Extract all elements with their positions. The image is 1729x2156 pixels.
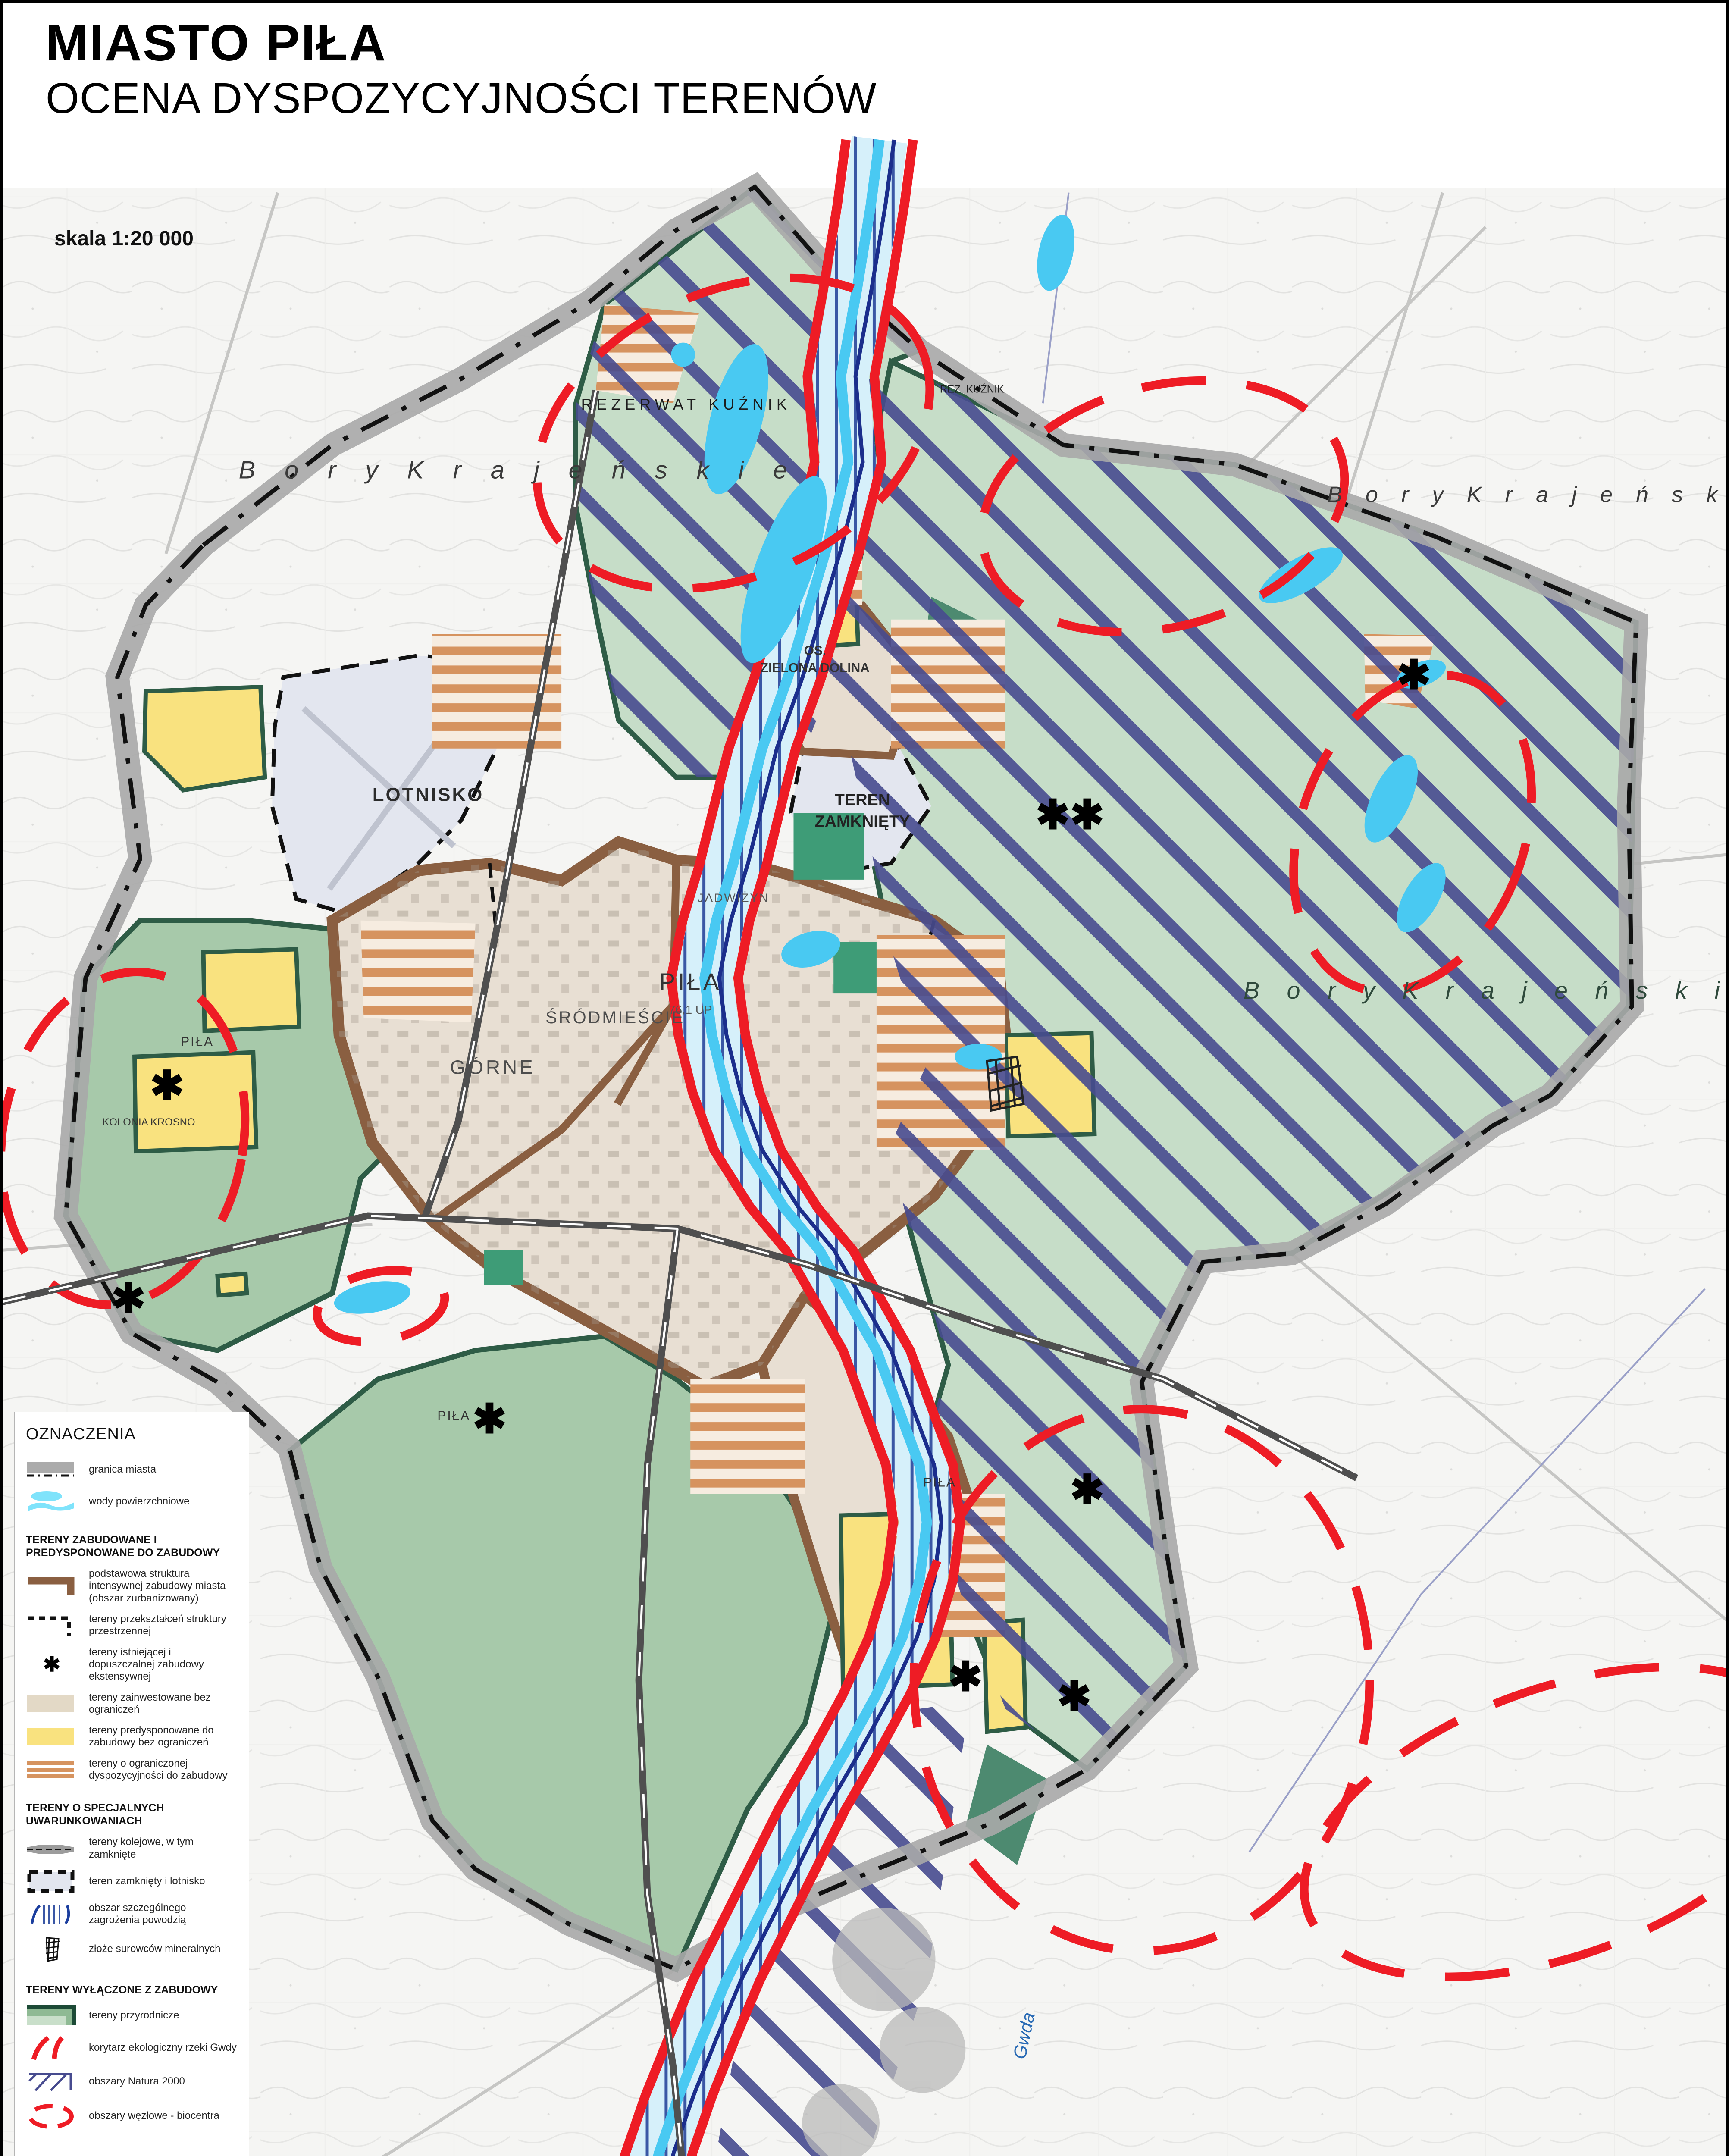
asterisk-icon: ✱	[1397, 652, 1431, 698]
legend-item-label: obszary Natura 2000	[89, 2075, 185, 2087]
closed-area-swatch-icon	[26, 1869, 78, 1893]
asterisk-icon: ✱	[1036, 792, 1070, 838]
legend-item-label: złoże surowców mineralnych	[89, 1943, 220, 1955]
label-srodmiescie: ŚRÓDMIEŚCIE	[545, 1007, 685, 1027]
asterisk-swatch-icon: ✱	[26, 1652, 78, 1677]
asterisk-icon: ✱	[1070, 792, 1104, 838]
legend-item-przyrodnicze: tereny przyrodnicze	[26, 2005, 238, 2027]
legend-item-label: tereny zainwestowane bez ograniczeń	[89, 1692, 238, 1716]
legend-item-label: tereny o ograniczonej dyspozycyjności do…	[89, 1758, 238, 1782]
legend-item-zainwestowane: tereny zainwestowane bez ograniczeń	[26, 1692, 238, 1716]
asterisk-icon: ✱	[150, 1063, 184, 1109]
flood-risk-swatch-icon	[26, 1902, 78, 1926]
nature-swatch-icon	[26, 2005, 78, 2027]
legend-title: OZNACZENIA	[26, 1425, 238, 1444]
label-pila-small-2: PIŁA	[437, 1409, 470, 1423]
natura2000-swatch-icon	[26, 2070, 78, 2094]
asterisk-icon: ✱	[473, 1396, 507, 1442]
legend-item-ekstensywna: ✱ tereny istniejącej i dopuszczalnej zab…	[26, 1646, 238, 1683]
legend-item-label: tereny przekształceń struktury przestrze…	[89, 1613, 238, 1638]
legend-item-label: podstawowa struktura intensywnej zabudow…	[89, 1568, 238, 1604]
legend-item-label: granica miasta	[89, 1463, 156, 1476]
svg-text:✱: ✱	[43, 1653, 60, 1676]
legend-item-struktura: podstawowa struktura intensywnej zabudow…	[26, 1568, 238, 1604]
label-pila-small-1: PIŁA	[181, 1035, 214, 1049]
legend-item-label: tereny istniejącej i dopuszczalnej zabud…	[89, 1646, 238, 1683]
asterisk-icon: ✱	[1070, 1467, 1104, 1513]
label-jadwizyn: JADWIŻYN	[698, 891, 770, 905]
legend-item-natura2000: obszary Natura 2000	[26, 2070, 238, 2094]
legend-item-zloze: złoże surowców mineralnych	[26, 1935, 238, 1964]
label-bory-nw: B o r y K r a j e ń s k i e	[239, 457, 799, 484]
legend-item-ograniczona: tereny o ograniczonej dyspozycyjności do…	[26, 1758, 238, 1782]
city-border-swatch-icon	[26, 1458, 78, 1481]
legend-item-korytarz: korytarz ekologiczny rzeki Gwdy	[26, 2035, 238, 2061]
legend-item-kolejowe: tereny kolejowe, w tym zamknięte	[26, 1836, 238, 1861]
legend-item-zamkniety: teren zamknięty i lotnisko	[26, 1869, 238, 1893]
legend-item-label: tereny kolejowe, w tym zamknięte	[89, 1836, 238, 1861]
label-pila-small-3: PIŁA	[923, 1476, 956, 1490]
label-teren-zamkniety-1: TEREN	[835, 791, 890, 809]
plan-sheet: ✱ ✱ ✱ ✱ ✱ ✱ ✱ ✱ ✱ B o r y K r a j e ń s …	[0, 0, 1729, 2156]
mineral-deposit-swatch-icon	[26, 1935, 78, 1964]
city-map: ✱ ✱ ✱ ✱ ✱ ✱ ✱ ✱ ✱ B o r y K r a j e ń s …	[3, 3, 1726, 2156]
legend-box: OZNACZENIA granica miasta wody powierzch…	[14, 1412, 249, 2156]
legend-section-header: TERENY ZABUDOWANE I PREDYSPONOWANE DO ZA…	[26, 1533, 238, 1559]
legend-item-granica: granica miasta	[26, 1458, 238, 1481]
label-pila-elevation: 76,1 UP	[669, 1003, 712, 1016]
legend-item-wody: wody powierzchniowe	[26, 1489, 238, 1514]
legend-item-label: teren zamknięty i lotnisko	[89, 1875, 205, 1887]
asterisk-icon: ✱	[949, 1654, 983, 1700]
limited-swatch-icon	[26, 1760, 78, 1780]
legend-item-label: obszar szczególnego zagrożenia powodzią	[89, 1902, 238, 1927]
asterisk-icon: ✱	[1057, 1673, 1091, 1719]
asterisk-icon: ✱	[111, 1276, 145, 1322]
railway-swatch-icon	[26, 1839, 78, 1858]
label-teren-zamkniety-2: ZAMKNIĘTY	[815, 812, 910, 830]
legend-section-header: TERENY WYŁĄCZONE Z ZABUDOWY	[26, 1984, 238, 1996]
label-gorne: GÓRNE	[450, 1056, 536, 1078]
surface-water-swatch-icon	[26, 1489, 78, 1514]
legend-item-label: obszary węzłowe - biocentra	[89, 2110, 219, 2122]
label-pila-center: PIŁA	[659, 968, 722, 995]
label-os-zielona-dolina-2: ZIELONA DOLINA	[761, 661, 870, 675]
label-lotnisko: LOTNISKO	[373, 784, 484, 805]
label-bory-ne: B o r y K r a j e ń s k i e	[1327, 482, 1726, 507]
legend-item-label: tereny predysponowane do zabudowy bez og…	[89, 1724, 238, 1749]
transformation-swatch-icon	[26, 1613, 78, 1637]
eco-corridor-swatch-icon	[26, 2035, 78, 2061]
header: MIASTO PIŁA OCENA DYSPOZYCYJNOŚCI TERENÓ…	[46, 16, 877, 125]
legend-item-predysponowane: tereny predysponowane do zabudowy bez og…	[26, 1724, 238, 1749]
legend-item-powodz: obszar szczególnego zagrożenia powodzią	[26, 1902, 238, 1927]
page-title: MIASTO PIŁA	[46, 16, 877, 72]
label-rezerwat-kuznik: REZERWAT KUŹNIK	[581, 396, 791, 413]
label-bory-e: B o r y K r a j e ń s k i e	[1244, 977, 1726, 1004]
urban-structure-swatch-icon	[26, 1574, 78, 1598]
legend-item-label: wody powierzchniowe	[89, 1495, 189, 1507]
label-kolonia-krosno: KOLONIA KROSNO	[102, 1116, 195, 1128]
legend-item-label: korytarz ekologiczny rzeki Gwdy	[89, 2042, 237, 2054]
scale-label: skala 1:20 000	[54, 227, 194, 251]
label-os-zielona-dolina-1: OS.	[804, 643, 827, 658]
predisposed-swatch-icon	[26, 1727, 78, 1746]
page-subtitle: OCENA DYSPOZYCYJNOŚCI TERENÓW	[46, 72, 877, 125]
legend-item-biocentra: obszary węzłowe - biocentra	[26, 2103, 238, 2130]
label-rez-kuznik: REZ. KUŹNIK	[940, 383, 1004, 395]
biocentre-swatch-icon	[26, 2103, 78, 2130]
legend-item-przeksztalcenia: tereny przekształceń struktury przestrze…	[26, 1613, 238, 1638]
invested-swatch-icon	[26, 1694, 78, 1714]
legend-item-label: tereny przyrodnicze	[89, 2009, 179, 2021]
legend-section-header: TERENY O SPECJALNYCH UWARUNKOWANIACH	[26, 1802, 238, 1827]
